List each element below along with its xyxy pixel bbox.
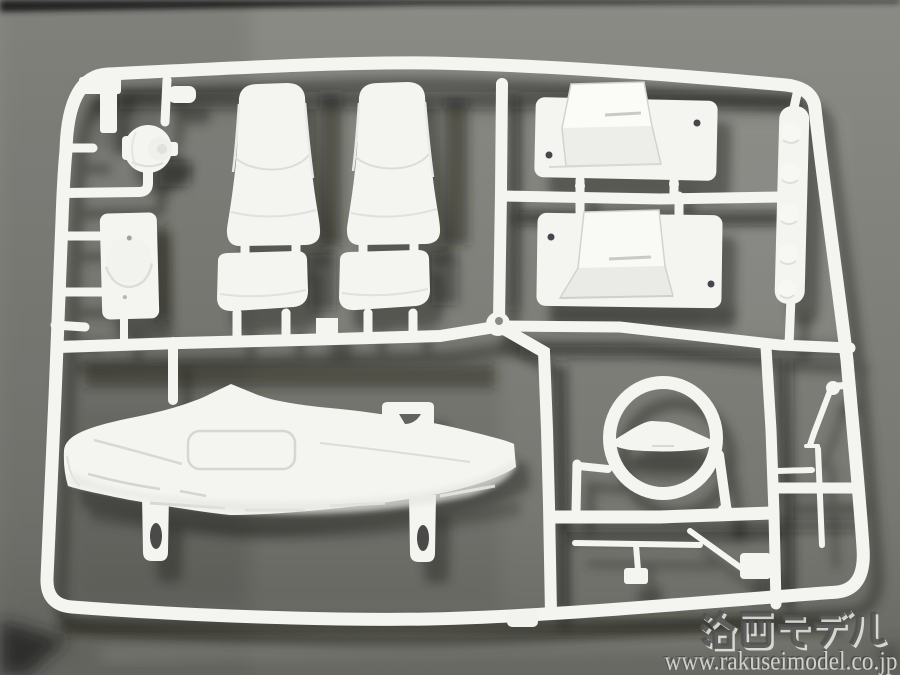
svg-text:www.rakuseimodel.co.jp: www.rakuseimodel.co.jp	[665, 647, 898, 675]
